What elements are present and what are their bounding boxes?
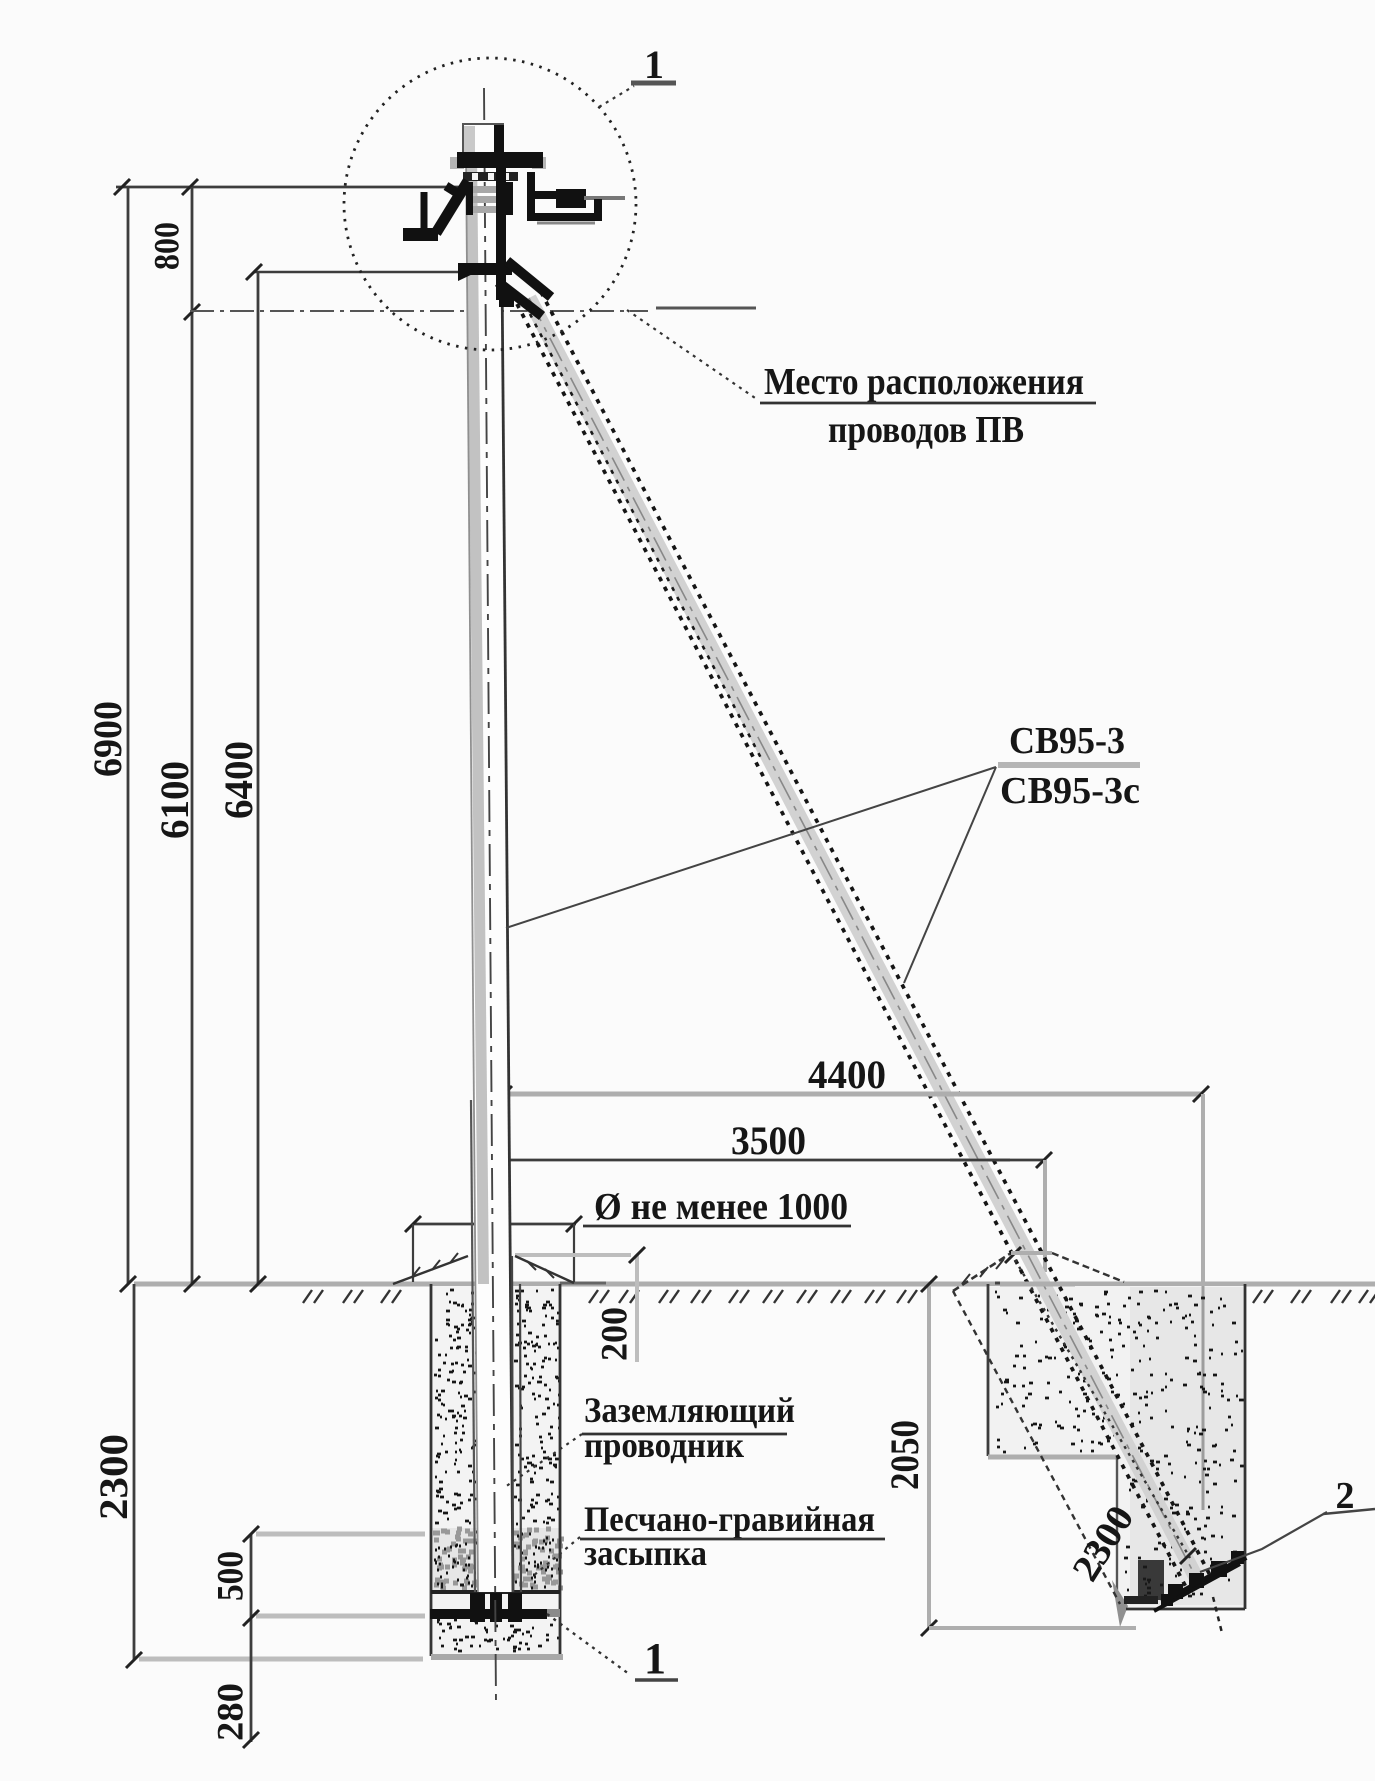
svg-text:Заземляющий: Заземляющий — [584, 1390, 795, 1430]
svg-text:3500: 3500 — [731, 1118, 806, 1163]
svg-text:Место расположения: Место расположения — [764, 361, 1084, 403]
svg-text:2: 2 — [1336, 1475, 1355, 1517]
svg-text:4400: 4400 — [808, 1052, 886, 1097]
svg-text:6400: 6400 — [216, 741, 261, 819]
svg-text:проводник: проводник — [584, 1425, 744, 1465]
svg-text:6900: 6900 — [85, 701, 130, 777]
svg-text:1: 1 — [644, 1634, 666, 1683]
svg-text:500: 500 — [210, 1551, 251, 1601]
svg-text:проводов ПВ: проводов ПВ — [828, 409, 1024, 451]
svg-text:1: 1 — [644, 42, 664, 87]
svg-text:засыпка: засыпка — [584, 1533, 707, 1573]
svg-text:Ø не менее 1000: Ø не менее 1000 — [594, 1186, 848, 1228]
svg-text:2300: 2300 — [91, 1434, 136, 1520]
svg-text:СВ95-3с: СВ95-3с — [1000, 770, 1140, 812]
svg-text:200: 200 — [594, 1307, 635, 1361]
svg-text:6100: 6100 — [152, 761, 197, 839]
svg-text:280: 280 — [210, 1683, 251, 1741]
svg-text:800: 800 — [146, 222, 186, 270]
svg-text:2050: 2050 — [882, 1420, 927, 1490]
svg-text:СВ95-3: СВ95-3 — [1009, 720, 1125, 762]
